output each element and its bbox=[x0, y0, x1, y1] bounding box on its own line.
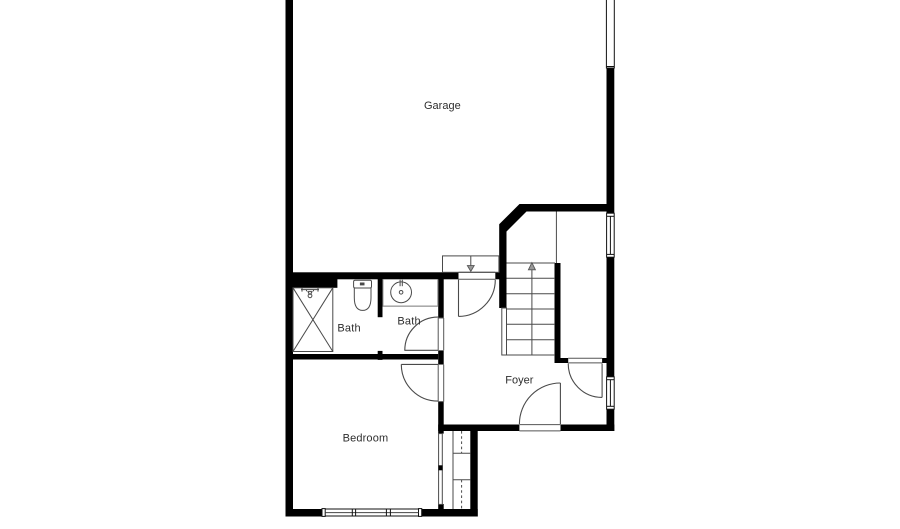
svg-text:Garage: Garage bbox=[424, 100, 461, 112]
svg-text:Bath: Bath bbox=[397, 315, 420, 327]
svg-text:Foyer: Foyer bbox=[505, 375, 533, 387]
svg-text:Bedroom: Bedroom bbox=[343, 432, 389, 444]
svg-text:Bath: Bath bbox=[337, 323, 360, 335]
